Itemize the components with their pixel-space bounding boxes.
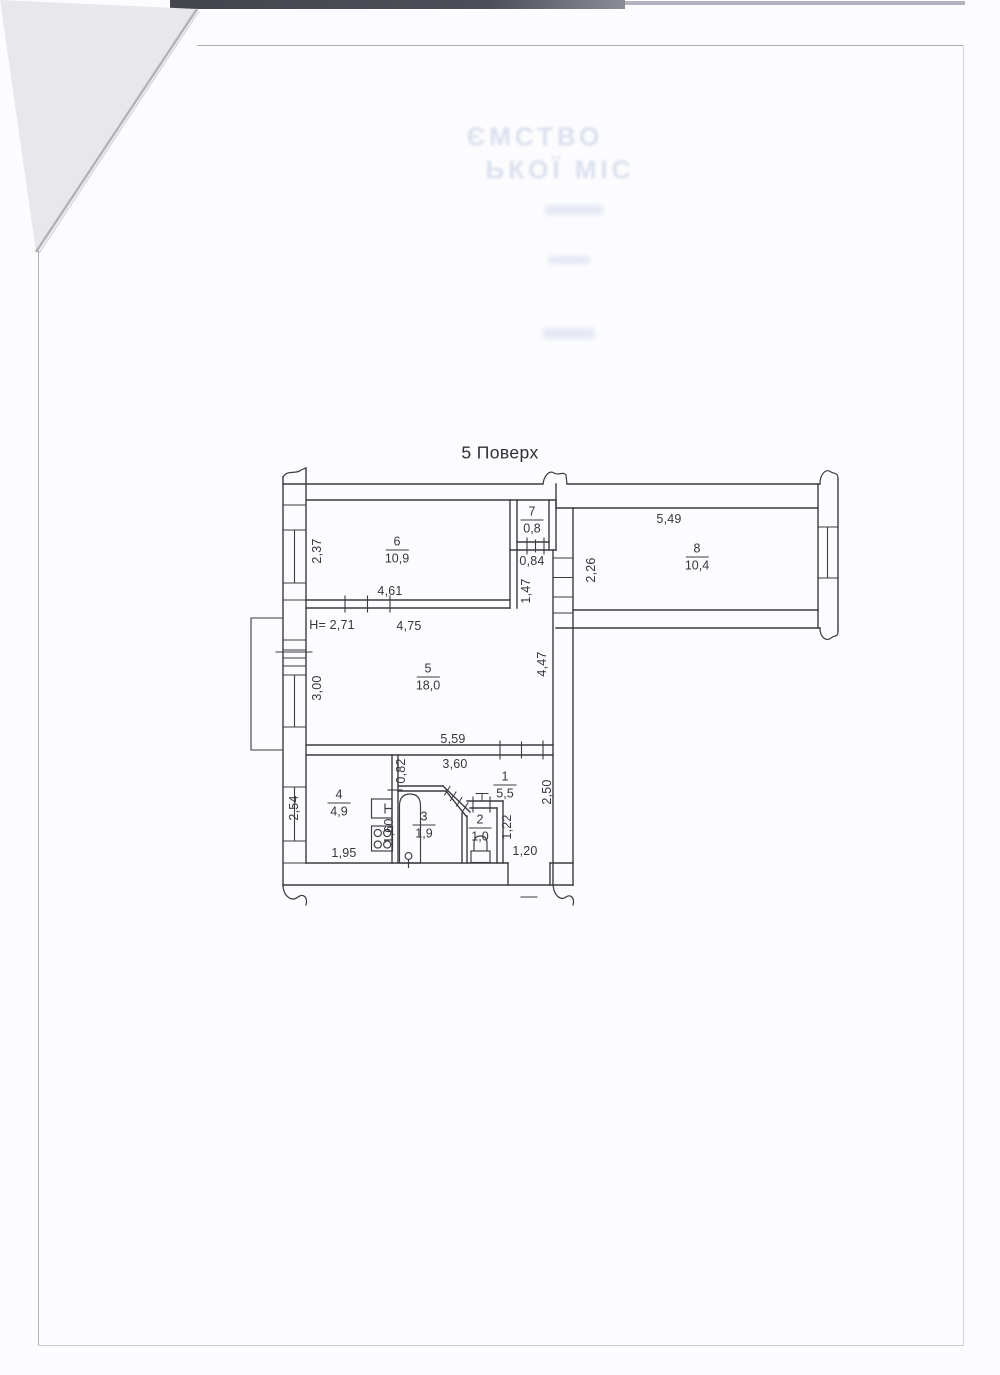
room-number: 2 <box>469 813 492 829</box>
room-area: 18,0 <box>416 678 440 693</box>
dimension-label: 1,20 <box>512 844 537 858</box>
dimension-label: 2,37 <box>310 538 324 563</box>
room-label: 31,9 <box>413 810 436 841</box>
dimension-label: 4,75 <box>396 619 421 633</box>
dimension-label: 1,60 <box>382 818 396 843</box>
dimension-label: 3,00 <box>310 675 324 700</box>
dimension-label: 1,22 <box>500 814 514 839</box>
dimension-label: 4,47 <box>535 651 549 676</box>
room-area: 5,5 <box>496 786 513 801</box>
plan-labels: 610,970,8810,4518,044,931,921,015,52,374… <box>0 0 1000 1375</box>
room-number: 1 <box>494 770 517 786</box>
scanned-page: ЄМСТВО ЬКОЇ МІС 5 Поверх <box>0 0 1000 1375</box>
room-label: 70,8 <box>521 505 544 536</box>
room-area: 4,9 <box>330 804 347 819</box>
room-number: 6 <box>386 535 409 551</box>
room-area: 10,4 <box>685 558 709 573</box>
room-number: 3 <box>413 810 436 826</box>
room-label: 810,4 <box>685 542 709 573</box>
room-area: 1,9 <box>415 826 432 841</box>
room-number: 8 <box>686 542 709 558</box>
dimension-label: 0,82 <box>394 758 408 783</box>
room-label: 44,9 <box>328 788 351 819</box>
dimension-label: 5,59 <box>440 732 465 746</box>
room-label: 21,0 <box>469 813 492 844</box>
dimension-label: 1,95 <box>331 846 356 860</box>
room-label: 610,9 <box>385 535 409 566</box>
room-area: 0,8 <box>523 521 540 536</box>
room-area: 1,0 <box>471 829 488 844</box>
dimension-label: 1,47 <box>519 578 533 603</box>
room-number: 5 <box>417 662 440 678</box>
dimension-label: 2,54 <box>287 795 301 820</box>
dimension-label: 2,50 <box>540 779 554 804</box>
dimension-label: Н= 2,71 <box>309 618 355 632</box>
dimension-label: 0,84 <box>519 554 544 568</box>
dimension-label: 4,61 <box>377 584 402 598</box>
room-number: 4 <box>328 788 351 804</box>
dimension-label: 5,49 <box>656 512 681 526</box>
dimension-label: 3,60 <box>442 757 467 771</box>
room-label: 518,0 <box>416 662 440 693</box>
room-label: 15,5 <box>494 770 517 801</box>
room-area: 10,9 <box>385 551 409 566</box>
dimension-label: 2,26 <box>584 557 598 582</box>
room-number: 7 <box>521 505 544 521</box>
